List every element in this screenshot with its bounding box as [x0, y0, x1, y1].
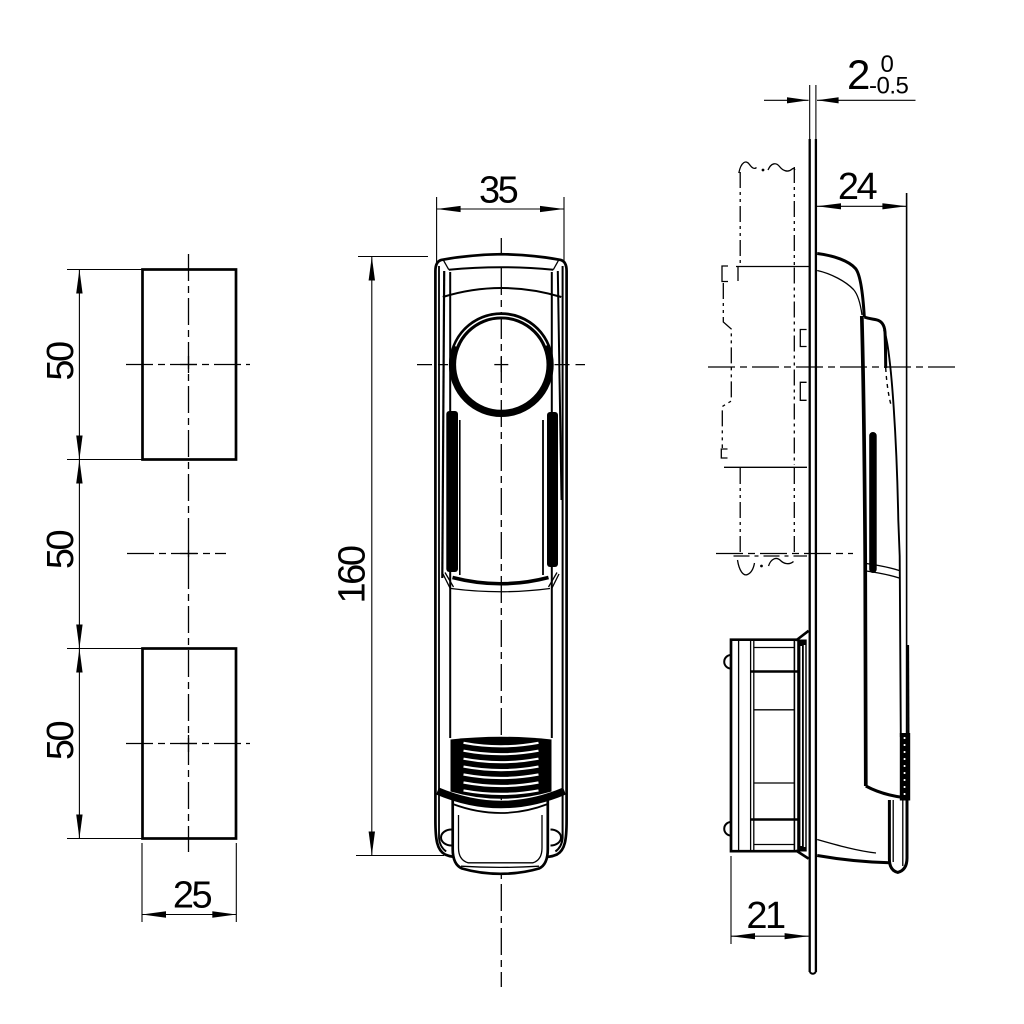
- svg-text:-0.5: -0.5: [869, 73, 909, 100]
- svg-text:50: 50: [40, 722, 82, 761]
- svg-text:50: 50: [40, 342, 82, 381]
- svg-text:24: 24: [838, 166, 878, 208]
- svg-text:50: 50: [40, 531, 82, 570]
- svg-text:2: 2: [847, 51, 869, 98]
- svg-text:35: 35: [479, 169, 518, 211]
- svg-text:160: 160: [332, 546, 374, 603]
- svg-text:21: 21: [746, 895, 785, 937]
- svg-text:25: 25: [173, 875, 212, 917]
